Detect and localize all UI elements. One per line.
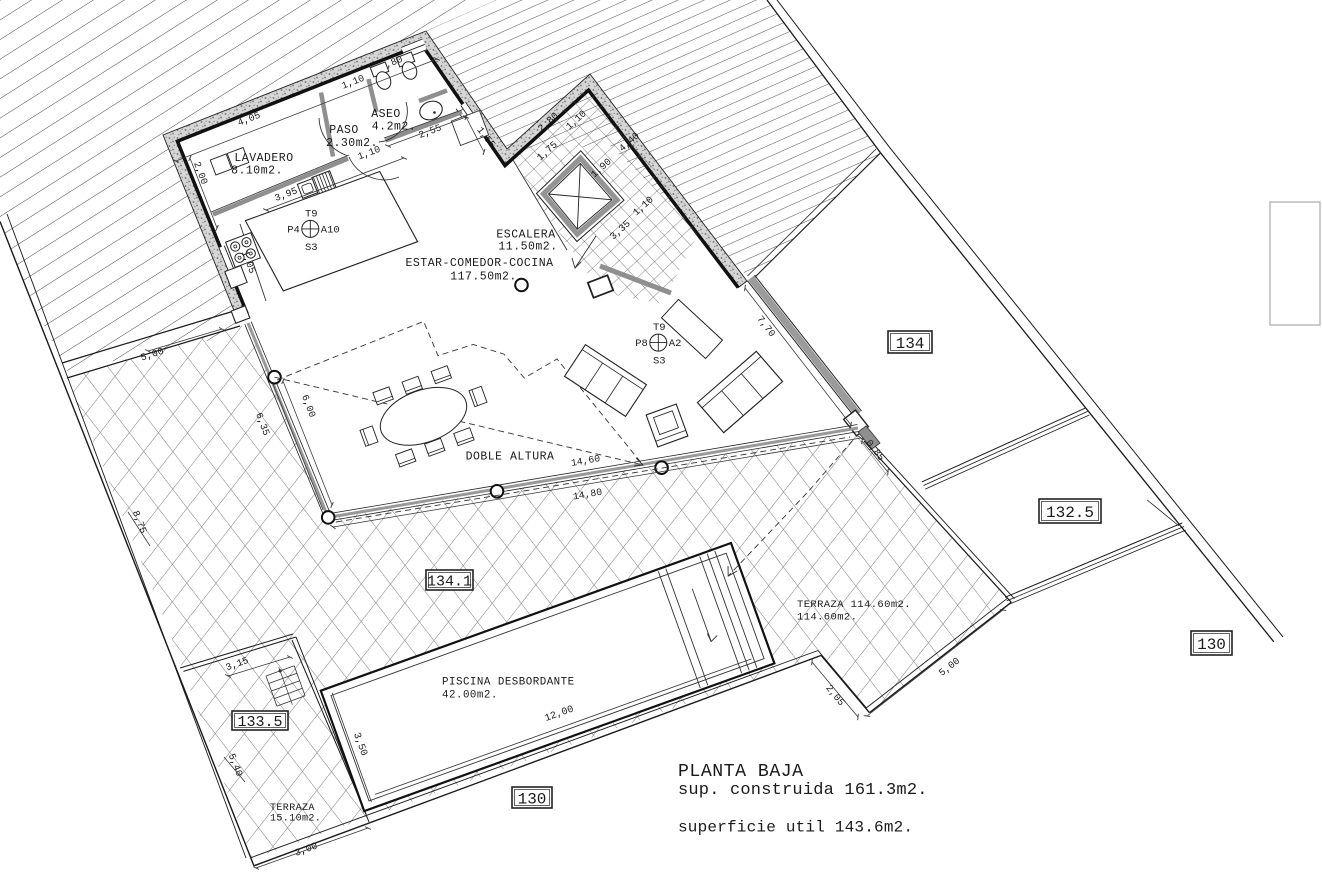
svg-text:T9: T9 xyxy=(305,208,318,220)
svg-text:134.1: 134.1 xyxy=(427,573,472,590)
svg-text:PASO: PASO xyxy=(329,124,359,137)
svg-text:P8: P8 xyxy=(635,338,648,350)
svg-text:42.00m2.: 42.00m2. xyxy=(442,690,498,702)
svg-text:TERRAZA: TERRAZA xyxy=(270,803,315,814)
svg-text:15.10m2.: 15.10m2. xyxy=(270,814,321,825)
svg-text:S3: S3 xyxy=(305,242,318,254)
svg-text:ASEO: ASEO xyxy=(371,108,401,121)
svg-text:ESTAR-COMEDOR-COCINA: ESTAR-COMEDOR-COCINA xyxy=(405,257,553,270)
svg-text:4.2m2.: 4.2m2. xyxy=(372,121,416,134)
svg-text:PLANTA BAJA: PLANTA BAJA xyxy=(678,762,804,782)
svg-text:LAVADERO: LAVADERO xyxy=(234,152,293,165)
svg-text:P4: P4 xyxy=(287,224,300,236)
svg-text:PISCINA DESBORDANTE: PISCINA DESBORDANTE xyxy=(442,677,575,689)
svg-text:114.60m2.: 114.60m2. xyxy=(797,612,857,624)
svg-text:130: 130 xyxy=(1197,636,1226,654)
svg-text:TERRAZA 114.60m2.: TERRAZA 114.60m2. xyxy=(797,599,911,611)
svg-text:11.50m2.: 11.50m2. xyxy=(498,241,557,254)
svg-text:sup. construida 161.3m2.: sup. construida 161.3m2. xyxy=(678,781,928,800)
svg-text:A2: A2 xyxy=(669,338,682,350)
svg-text:S3: S3 xyxy=(653,356,666,368)
svg-text:130: 130 xyxy=(518,790,547,808)
svg-text:DOBLE ALTURA: DOBLE ALTURA xyxy=(466,451,555,464)
svg-text:T9: T9 xyxy=(653,322,666,334)
svg-text:A10: A10 xyxy=(321,224,340,236)
svg-text:132.5: 132.5 xyxy=(1046,504,1094,522)
svg-text:134: 134 xyxy=(896,335,925,353)
svg-text:superficie util 143.6m2.: superficie util 143.6m2. xyxy=(678,819,913,837)
svg-text:117.50m2.: 117.50m2. xyxy=(450,271,517,284)
svg-text:8.10m2.: 8.10m2. xyxy=(231,165,283,178)
svg-text:133.5: 133.5 xyxy=(237,714,282,731)
